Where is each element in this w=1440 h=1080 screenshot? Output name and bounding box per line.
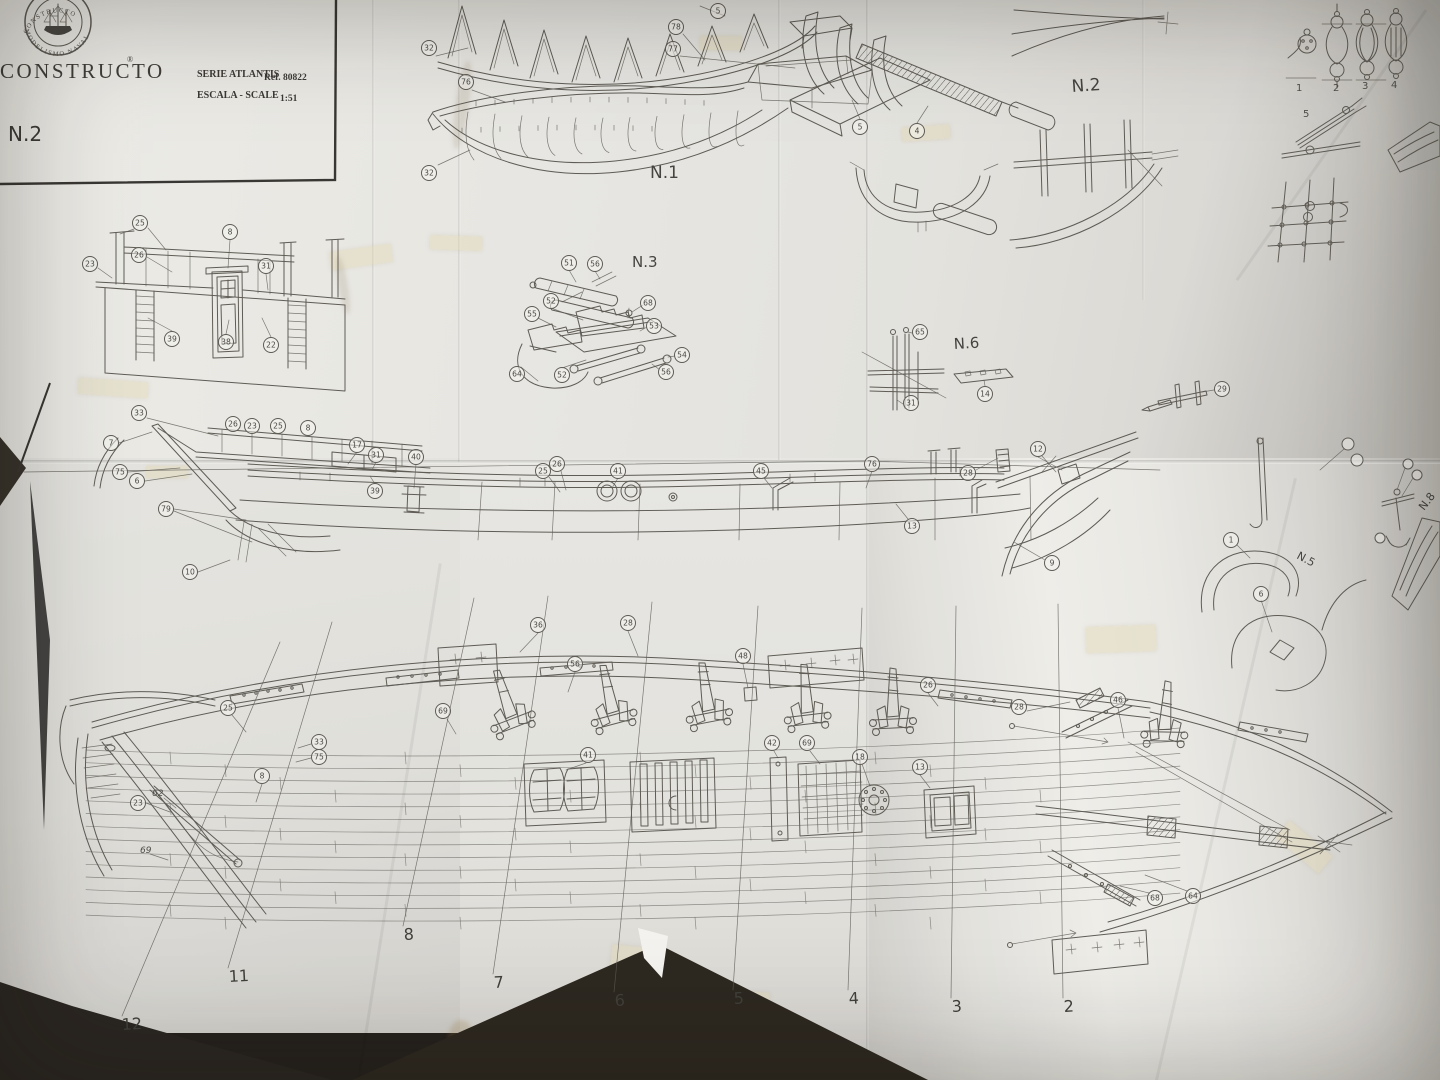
photo-color-tint (0, 0, 1440, 1080)
photo-of-model-ship-plan-sheet: CONSTRUCTO MODELISMO NAVAL CONSTRUCTO ® … (0, 0, 1440, 1080)
